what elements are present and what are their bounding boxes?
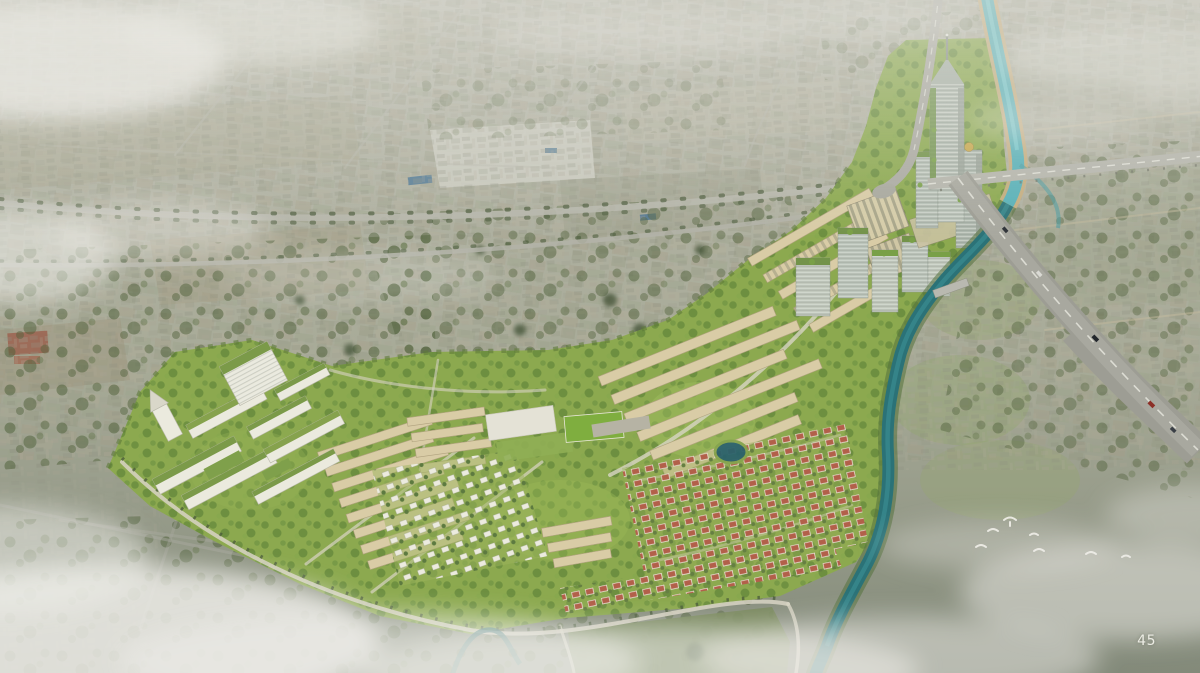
rendering-canvas	[0, 0, 1200, 673]
pond	[715, 441, 747, 463]
atmospheric-haze	[0, 0, 1200, 240]
slide-image-aerial-masterplan: 45	[0, 0, 1200, 673]
page-number: 45	[1137, 633, 1156, 649]
